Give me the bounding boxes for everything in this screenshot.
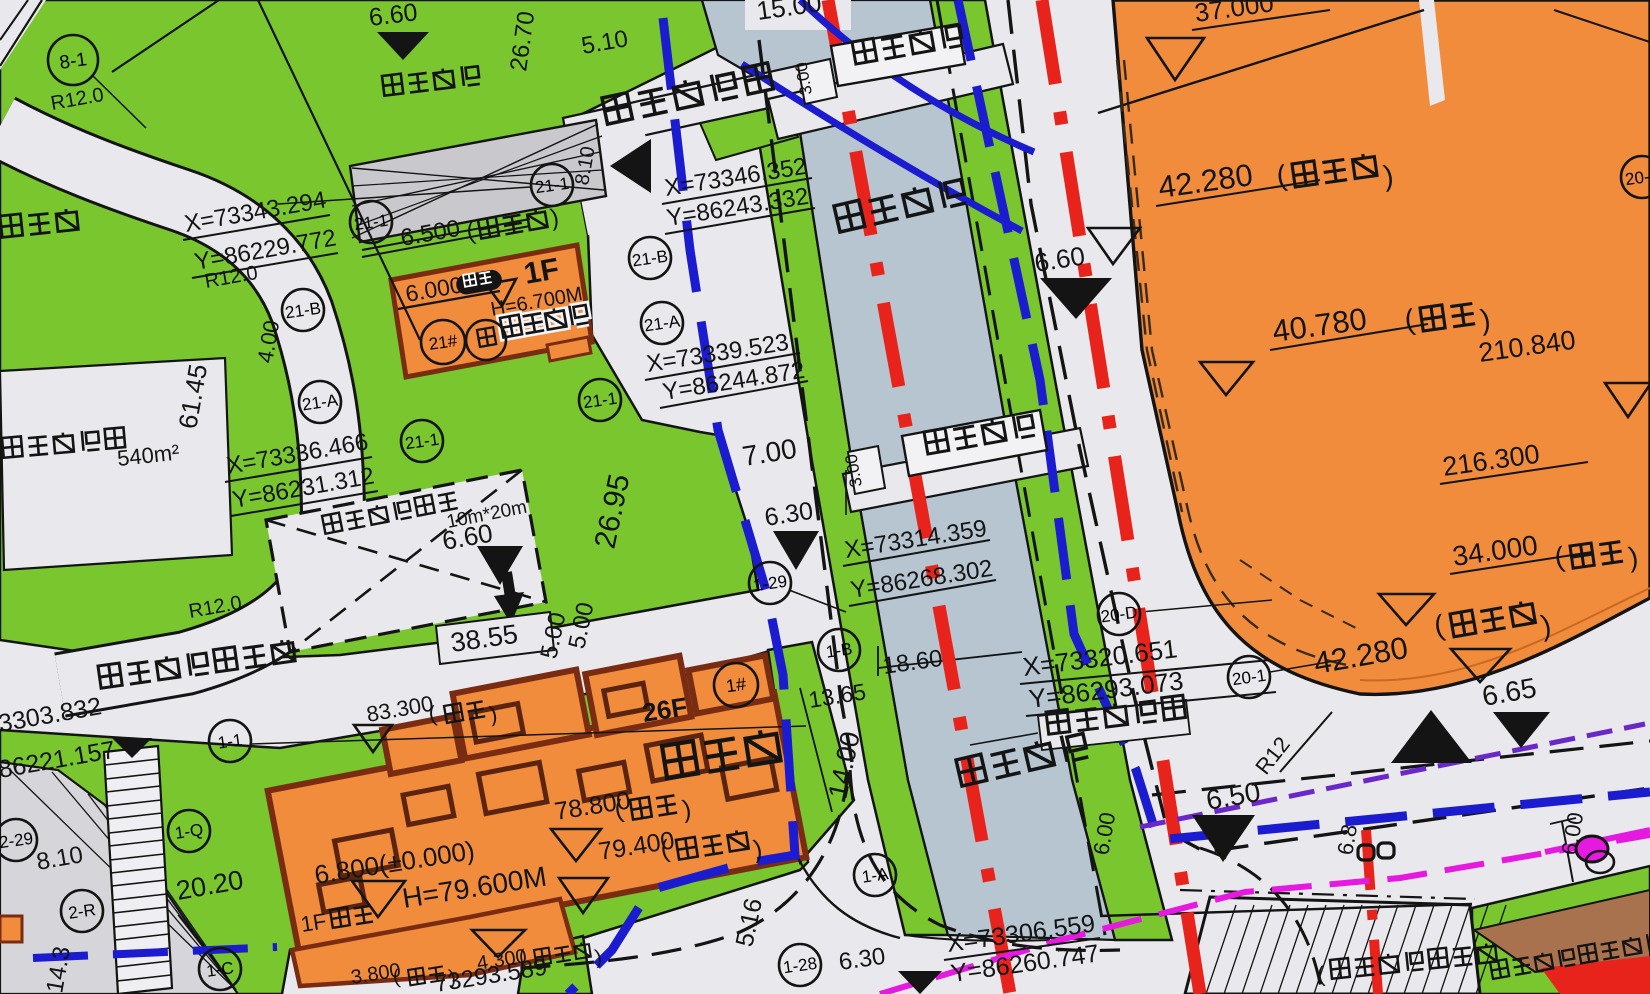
- svg-text:8-1: 8-1: [58, 49, 88, 74]
- svg-text:1-A: 1-A: [861, 864, 890, 887]
- svg-text:1F: 1F: [299, 908, 328, 937]
- svg-text:2-R: 2-R: [67, 900, 97, 923]
- svg-text:1-Q: 1-Q: [174, 820, 205, 843]
- svg-text:21#: 21#: [428, 331, 459, 354]
- svg-text:1-1: 1-1: [217, 730, 244, 752]
- svg-text:1#: 1#: [725, 674, 748, 697]
- svg-text:1-B: 1-B: [825, 639, 854, 661]
- svg-text:6.8: 6.8: [1332, 822, 1362, 856]
- svg-text:1-C: 1-C: [205, 958, 235, 981]
- svg-text:20-1: 20-1: [1624, 166, 1650, 190]
- svg-text:1F: 1F: [521, 252, 561, 291]
